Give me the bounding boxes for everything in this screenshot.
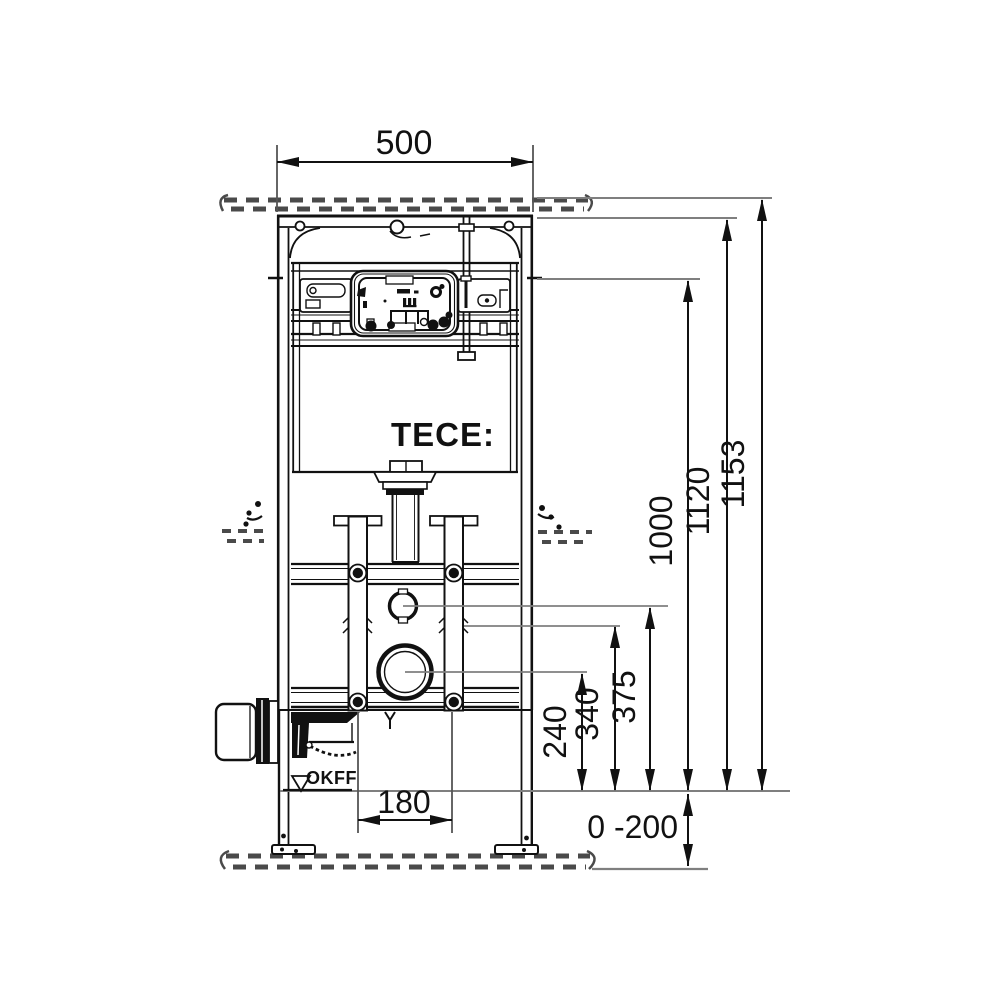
top-bar-hole-left — [296, 222, 305, 231]
rail-bolt — [445, 565, 462, 582]
dim-label-floor-range: 0 -200 — [587, 809, 678, 845]
dimension-height-1153: 1153 — [715, 199, 767, 791]
mid-cross-rail — [291, 564, 519, 584]
inspection-window — [351, 271, 458, 336]
floor-level-label: OKFF — [306, 768, 357, 788]
top-bar-hole-center — [391, 221, 404, 234]
corner-gusset-left — [290, 228, 320, 258]
dimension-floor-range: 0 -200 — [587, 794, 693, 866]
side-panel-right — [458, 276, 510, 312]
flex-hose — [310, 746, 356, 755]
dimension-spacing-180: 180 — [358, 712, 452, 833]
dim-label-340: 340 — [569, 687, 605, 740]
wall-hatch-mid-right — [538, 505, 592, 542]
side-panel-left — [300, 279, 352, 312]
water-supply-connector — [216, 698, 278, 764]
flush-pipe — [374, 461, 436, 562]
dim-label-375: 375 — [606, 670, 642, 723]
drain-mark — [385, 712, 395, 729]
top-bar-hole-right — [505, 222, 514, 231]
dim-label-500: 500 — [376, 124, 433, 162]
dim-label-1000: 1000 — [643, 495, 679, 566]
rail-bolt — [349, 694, 366, 711]
rail-bolt — [349, 565, 366, 582]
corner-gusset-right — [490, 228, 520, 258]
wall-hatch-mid-left — [222, 501, 268, 541]
dim-label-1153: 1153 — [715, 440, 751, 509]
drain-elbow — [291, 712, 395, 758]
brand-logo: TECE: — [391, 416, 495, 453]
rail-bolt — [445, 694, 462, 711]
dim-label-180: 180 — [377, 784, 430, 820]
technical-drawing-page: TECE: — [0, 0, 1000, 1000]
foot-plate-right — [495, 845, 538, 854]
floor-level-marker: OKFF — [283, 768, 357, 791]
foot-plate-left — [272, 845, 315, 854]
dim-label-1120: 1120 — [680, 467, 716, 536]
installation-frame-drawing: TECE: — [0, 0, 1000, 1000]
dim-label-240: 240 — [537, 705, 573, 758]
